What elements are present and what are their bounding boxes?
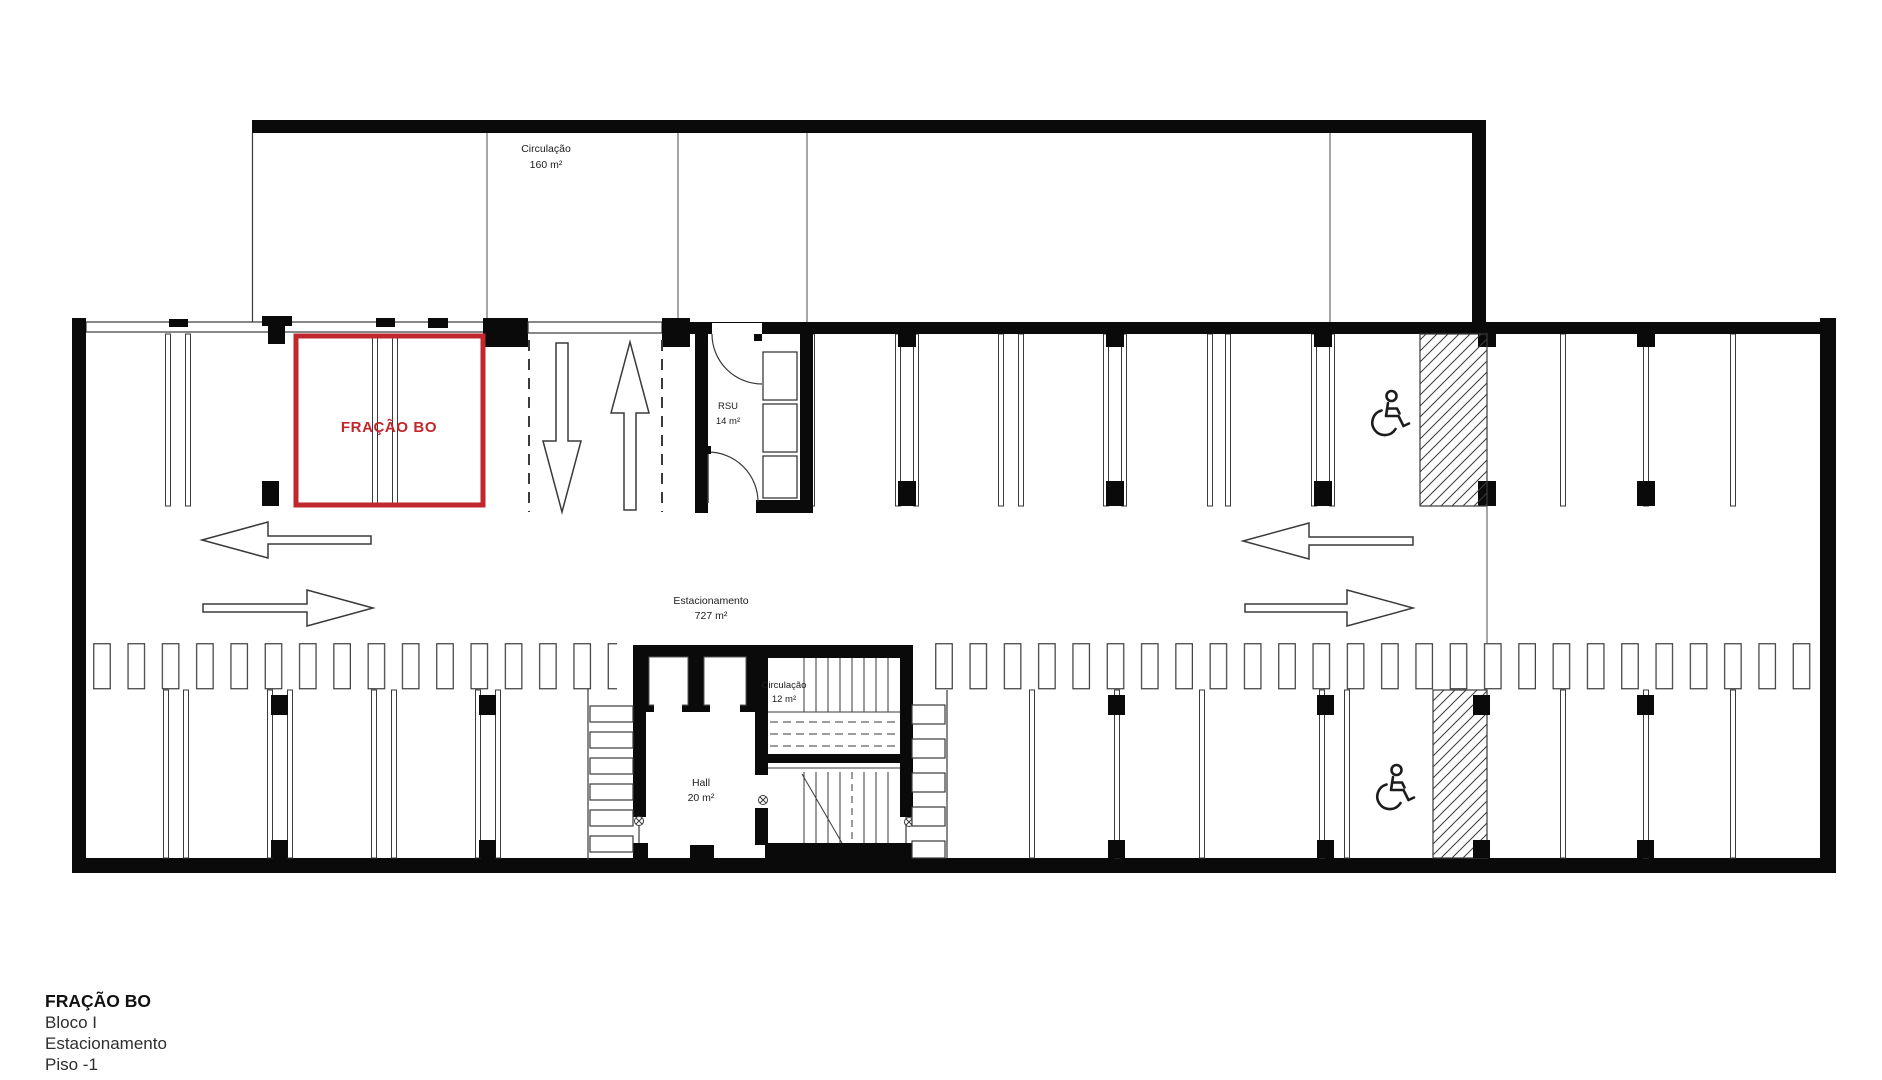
wheelchair-icon	[1377, 765, 1414, 809]
accessible-parking-bottom	[1377, 690, 1487, 858]
elevator-shafts	[633, 645, 765, 713]
traffic-arrow-west-left	[202, 522, 371, 558]
wheelchair-icon	[1372, 391, 1409, 435]
room-area-parking: 727 m²	[695, 610, 728, 622]
title-usage: Estacionamento	[45, 1033, 167, 1054]
room-area-rsu: 14 m²	[716, 416, 740, 427]
title-building-block: Bloco I	[45, 1012, 167, 1033]
ramp-up-arrow	[611, 342, 649, 510]
room-area-upper-circulation: 160 m²	[530, 159, 563, 171]
fraction-highlight: FRAÇÃO BO	[296, 336, 483, 505]
storage-stall-rows	[93, 643, 1820, 690]
room-area-hall: 20 m²	[688, 792, 715, 804]
title-floor: Piso -1	[45, 1054, 167, 1075]
walkway-hatch-right	[912, 690, 947, 858]
rsu-door-arc-bottom	[708, 452, 758, 502]
upper-block: Circulação 160 m²	[252, 120, 1486, 334]
parking-dividers-bottom-row	[164, 690, 1736, 858]
floor-plan-drawing: Circulação 160 m²	[0, 0, 1882, 1080]
traffic-arrow-east-left	[1243, 523, 1413, 559]
rsu-room: RSU 14 m²	[695, 323, 813, 513]
core: Hall 20 m² Circulação 12 m²	[588, 645, 947, 860]
traffic-arrows	[202, 522, 1413, 626]
ramp-down-arrow	[543, 343, 581, 512]
traffic-arrow-east-right	[1245, 590, 1413, 626]
rsu-door-arc-top	[712, 334, 762, 384]
door-pivot-icon	[759, 796, 768, 805]
room-label-hall: Hall	[692, 777, 710, 789]
walkway-hatch-left	[588, 681, 633, 860]
floor-plan-page: Circulação 160 m²	[0, 0, 1882, 1080]
door-pivot-icon	[635, 817, 644, 826]
ramp-area	[529, 340, 662, 512]
accessible-parking-top	[1372, 334, 1487, 506]
room-label-upper-circulation: Circulação	[521, 143, 571, 155]
fraction-label: FRAÇÃO BO	[341, 418, 437, 436]
room-area-stair-circulation: 12 m²	[772, 694, 796, 705]
room-label-rsu: RSU	[718, 401, 738, 412]
outer-walls	[72, 316, 1836, 873]
accessible-aisle-hatch	[1420, 334, 1487, 506]
title-fraction: FRAÇÃO BO	[45, 991, 167, 1012]
accessible-aisle-hatch	[1433, 690, 1487, 858]
room-label-parking: Estacionamento	[673, 595, 748, 607]
traffic-arrow-west-right	[203, 590, 373, 626]
rsu-bins	[763, 352, 797, 498]
room-label-stair-circulation: Circulação	[762, 680, 807, 691]
title-block: FRAÇÃO BO Bloco I Estacionamento Piso -1	[45, 991, 167, 1075]
